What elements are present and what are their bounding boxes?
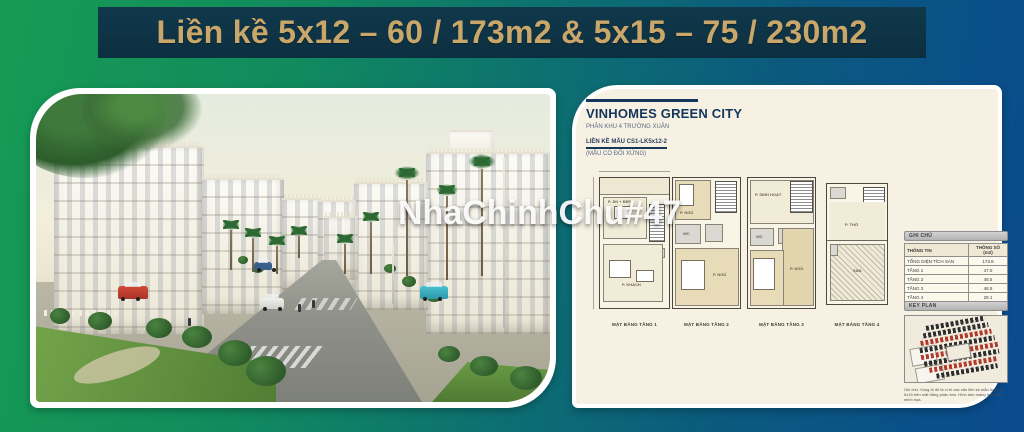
crosswalk-far	[294, 298, 357, 310]
area-table: THÔNG TIN THÔNG SỐ (m2) TỔNG DIỆN TÍCH S…	[904, 243, 1008, 302]
row-value: 47.0	[969, 266, 1008, 275]
room-label: P. SINH HOẠT	[755, 192, 781, 197]
blue-car-far	[254, 262, 272, 270]
bush-icon	[510, 366, 542, 390]
room-label: P. THỜ	[845, 222, 858, 227]
header-rule	[586, 99, 698, 102]
table-row: TẦNG 3 48.5	[905, 284, 1008, 293]
teal-car	[420, 286, 448, 299]
row-label: TỔNG DIỆN TÍCH SÀN	[905, 257, 969, 266]
room-label: P. NGỦ	[713, 272, 726, 277]
row-label: TẦNG 1	[905, 266, 969, 275]
col-header-info: THÔNG TIN	[905, 244, 969, 257]
pedestrian	[312, 300, 315, 308]
notes-section-title: GHI CHÚ	[904, 231, 1008, 241]
bush-icon	[50, 308, 70, 324]
palm-tree-icon	[222, 220, 240, 270]
pedestrian	[298, 304, 301, 312]
floorplan-sheet: VINHOMES GREEN CITY PHÂN KHU 4 TRƯỜNG XU…	[572, 85, 1002, 408]
watermark: NhaChinhChu#47	[398, 194, 681, 233]
floorplan-level-3: P. SINH HOẠT WC P. NGỦ	[747, 177, 816, 309]
light-pole	[392, 244, 394, 304]
room-label: P. KHÁCH	[622, 282, 641, 287]
title-banner: Liền kề 5x12 – 60 / 173m2 & 5x15 – 75 / …	[98, 7, 926, 58]
row-label: TẦNG 2	[905, 275, 969, 284]
bush-icon	[470, 356, 498, 376]
dimension-line	[599, 171, 670, 172]
sheet-header: VINHOMES GREEN CITY PHÂN KHU 4 TRƯỜNG XU…	[586, 99, 742, 157]
table-row: TỔNG DIỆN TÍCH SÀN 173.8	[905, 257, 1008, 266]
banner-title: Liền kề 5x12 – 60 / 173m2 & 5x15 – 75 / …	[157, 14, 868, 51]
floorplan-level-2: P. NGỦ WC P. NGỦ	[672, 177, 741, 309]
project-title: VINHOMES GREEN CITY	[586, 106, 742, 121]
render-photo-card	[30, 88, 556, 408]
row-value: 48.5	[969, 284, 1008, 293]
row-value: 48.5	[969, 275, 1008, 284]
table-row: TẦNG 2 48.5	[905, 275, 1008, 284]
palm-tree-icon	[290, 226, 308, 258]
row-label: TẦNG 3	[905, 284, 969, 293]
keyplan-note: Ghi chú: Vùng tô đỏ là vị trí các căn li…	[904, 387, 1008, 402]
model-code: LIỀN KỀ MẪU CS1-LK5x12-2	[586, 139, 667, 149]
palm-tree-icon	[362, 212, 380, 274]
bush-icon	[218, 340, 252, 366]
room-label: WC	[756, 234, 763, 239]
symmetry-note: (MẪU CÓ ĐỐI XỨNG)	[586, 151, 742, 157]
floorplan-caption-4: MẶT BẰNG TẦNG 4	[826, 322, 888, 327]
row-value: 173.8	[969, 257, 1008, 266]
room-label: P. NGỦ	[790, 266, 803, 271]
bush-icon	[246, 356, 286, 386]
bush-icon	[182, 326, 212, 348]
flyer-canvas: Liền kề 5x12 – 60 / 173m2 & 5x15 – 75 / …	[0, 0, 1024, 432]
palm-tree-icon	[336, 234, 354, 274]
room-label: SÂN	[853, 268, 861, 273]
white-car	[260, 298, 284, 309]
light-pole	[503, 158, 505, 328]
townhouse-render-image	[36, 94, 550, 402]
pedestrian	[188, 318, 191, 326]
bush-icon	[402, 276, 416, 287]
col-header-value: THÔNG SỐ (m2)	[969, 244, 1008, 257]
bush-icon	[88, 312, 112, 330]
table-row: TẦNG 1 47.0	[905, 266, 1008, 275]
floorplan-caption-3: MẶT BẰNG TẦNG 3	[747, 322, 816, 327]
keyplan-section-title: KEY PLAN	[904, 301, 1008, 311]
keyplan-map	[904, 315, 1008, 383]
room-label: WC	[683, 231, 690, 236]
floorplan-level-4: P. THỜ SÂN	[826, 183, 888, 305]
bush-icon	[146, 318, 172, 338]
bush-icon	[438, 346, 460, 362]
room-label: P. NGỦ	[680, 210, 693, 215]
floorplan-caption-2: MẶT BẰNG TẦNG 2	[672, 322, 741, 327]
red-car	[118, 286, 148, 299]
floorplan-caption-1: MẶT BẰNG TẦNG 1	[599, 322, 670, 327]
